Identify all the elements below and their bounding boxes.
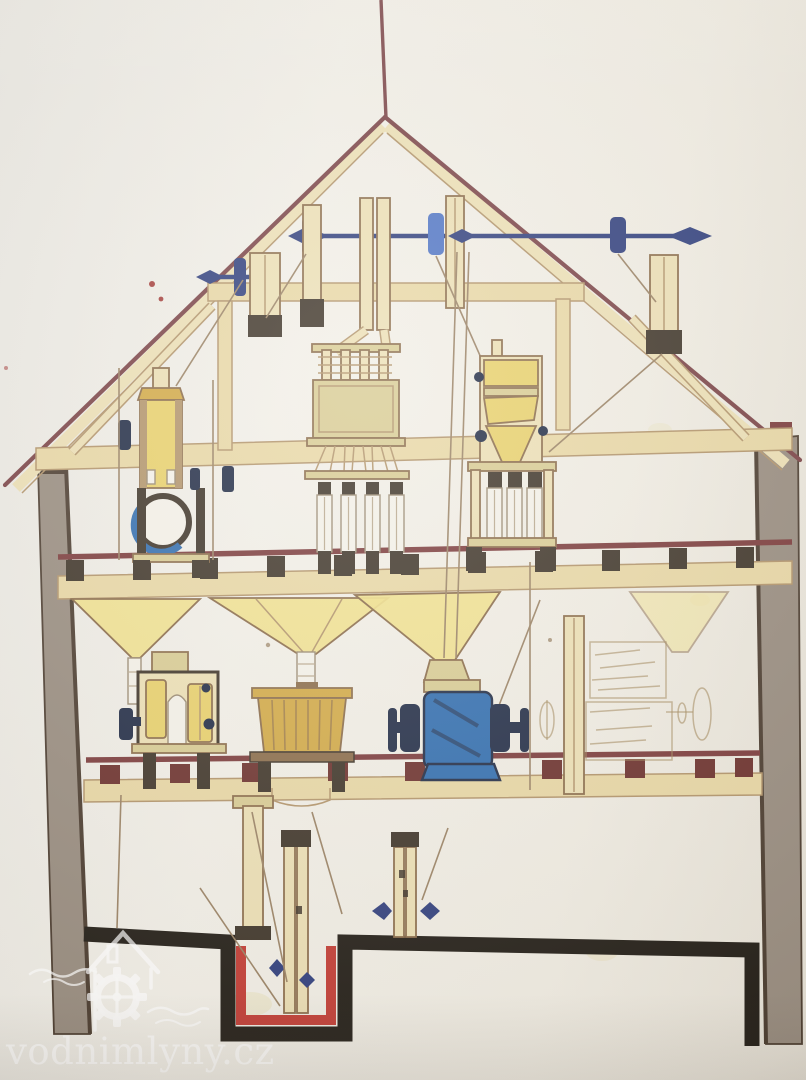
- plansifter-box: [313, 380, 399, 438]
- mill-cross-section-drawing: vodnimlyny.cz: [0, 0, 806, 1080]
- gear-icon: [87, 967, 147, 1027]
- pulley-light: [428, 213, 444, 255]
- plansifter-sleeves: [317, 482, 404, 574]
- masonry-wall-left: [38, 456, 90, 1034]
- masonry-wall-right: [756, 422, 802, 1044]
- queen-post-right: [556, 299, 570, 430]
- hopper-center: [210, 598, 388, 654]
- watermark-text: vodnimlyny.cz: [5, 1030, 275, 1073]
- pulley: [610, 217, 626, 253]
- queen-post-left: [218, 301, 232, 450]
- hopper-faint: [630, 592, 728, 652]
- elevator-leg: [394, 847, 404, 937]
- lightning-rod: [381, 0, 386, 118]
- red-speck: [149, 281, 155, 287]
- photo-of-drawing: vodnimlyny.cz: [0, 0, 806, 1080]
- aspirator-fan: [118, 368, 234, 578]
- hopper-right: [355, 592, 500, 660]
- support-column: [243, 806, 263, 930]
- vat-body: [258, 698, 346, 752]
- grain-hoppers: [72, 592, 728, 660]
- hopper-left: [72, 599, 200, 658]
- elevator-leg: [284, 845, 295, 1013]
- shaft-arrow-right: [668, 227, 712, 245]
- purifier: [466, 340, 556, 571]
